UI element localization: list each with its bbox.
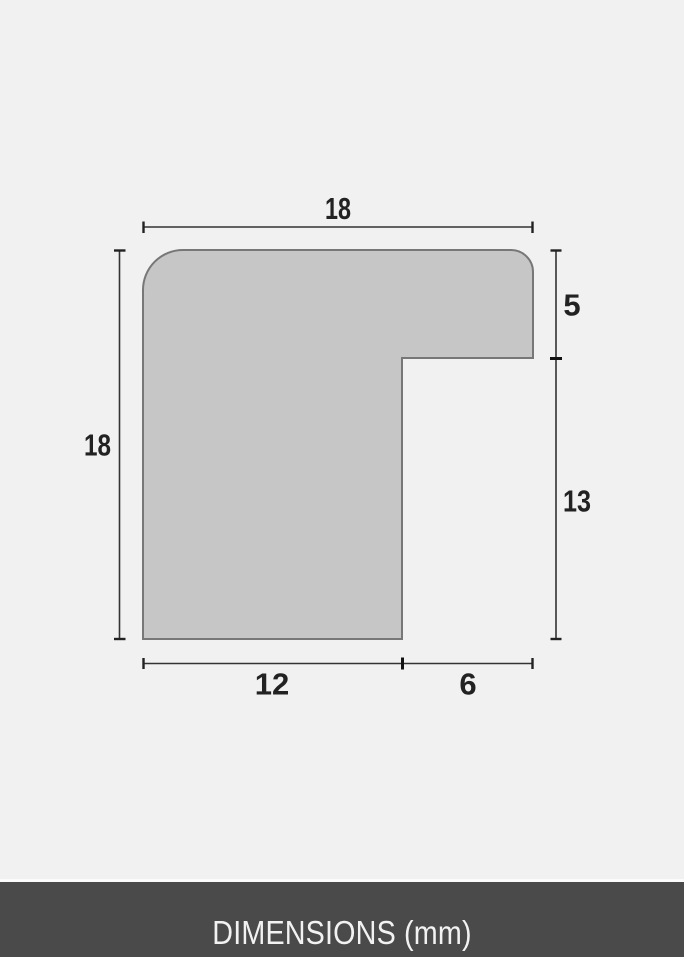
svg-text:12: 12 [255, 667, 289, 702]
svg-text:13: 13 [563, 484, 591, 519]
svg-text:18: 18 [84, 428, 111, 463]
svg-text:6: 6 [459, 667, 476, 702]
svg-text:5: 5 [563, 288, 580, 323]
svg-text:18: 18 [325, 191, 351, 226]
